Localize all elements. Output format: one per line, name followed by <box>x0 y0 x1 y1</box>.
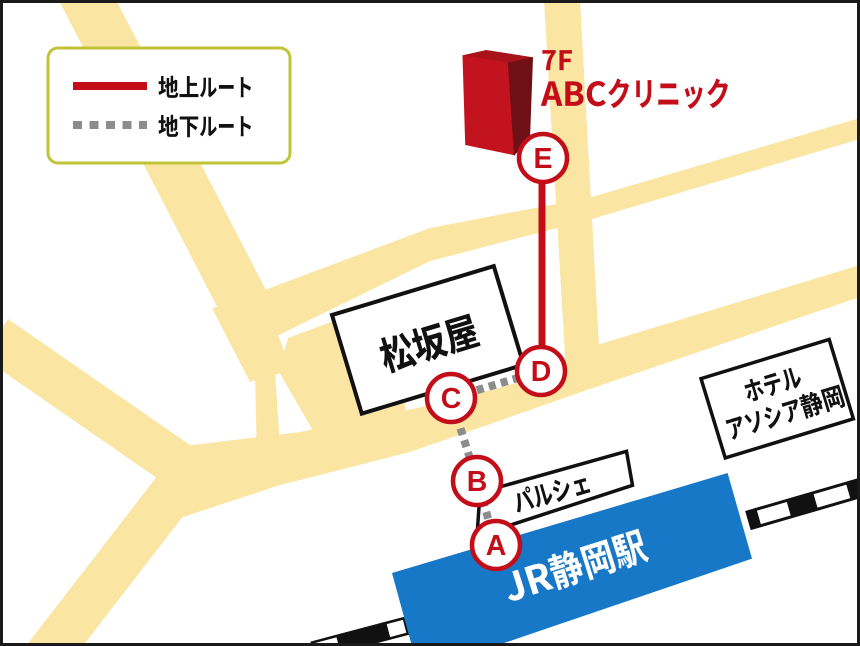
svg-text:B: B <box>467 466 488 498</box>
svg-text:A: A <box>486 530 507 562</box>
svg-text:E: E <box>533 143 552 175</box>
svg-text:C: C <box>441 383 462 415</box>
svg-text:D: D <box>531 356 552 388</box>
